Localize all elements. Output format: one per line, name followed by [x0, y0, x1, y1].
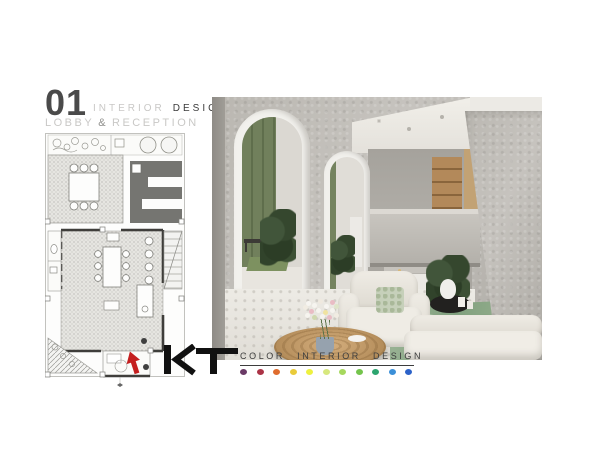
plan-bench-top	[107, 233, 119, 241]
plan-sink	[50, 267, 57, 273]
recessed-light-icon	[440, 115, 444, 119]
subtitle-lobby: LOBBY	[45, 117, 94, 129]
plan-meeting-table	[69, 173, 99, 201]
flower-stems	[320, 319, 330, 339]
plan-dark-dot-1	[141, 338, 147, 344]
plan-top-box	[115, 139, 124, 147]
ceiling	[352, 97, 474, 153]
sofa-seat	[404, 331, 542, 360]
render-photo	[212, 97, 542, 360]
plan-dim-diamond	[117, 383, 123, 387]
parapet-cap	[362, 209, 480, 214]
subtitle-ampersand: &	[98, 117, 108, 129]
page-subtitle: LOBBY&RECEPTION	[45, 117, 199, 129]
palette-dot	[257, 369, 264, 375]
kt-logo	[163, 344, 239, 376]
plan-unit-box	[132, 164, 141, 173]
plan-unit-notch-2	[142, 199, 182, 209]
mezzanine-recess	[368, 149, 478, 217]
logo-tagline: COLOR INTERIOR DESIGN	[240, 351, 414, 366]
green-pillow	[376, 287, 404, 313]
plan-entry-fixture	[107, 354, 121, 363]
candle	[458, 297, 465, 307]
plan-lobby-table	[103, 247, 121, 287]
recessed-light-icon	[377, 119, 381, 123]
palette-dot	[240, 369, 247, 375]
arch-1-opening	[242, 117, 302, 293]
subtitle-reception: RECEPTION	[112, 117, 199, 129]
wood-shelving	[432, 157, 462, 215]
arch-1	[234, 109, 310, 293]
page-title: INTERIORDESIGN	[93, 103, 229, 114]
palette-dots	[240, 369, 412, 375]
palette-dot	[389, 369, 396, 375]
palette-dot	[306, 369, 313, 375]
wall-left-edge	[212, 97, 225, 360]
palette-dot	[273, 369, 280, 375]
palette-dot	[356, 369, 363, 375]
plan-unit-notch-1	[148, 177, 182, 187]
plant	[260, 209, 296, 271]
palette-dot	[405, 369, 412, 375]
plan-round-table-1	[140, 137, 156, 153]
kt-logo-t-stem	[210, 348, 217, 374]
presentation-board: 01 INTERIORDESIGN LOBBY&RECEPTION	[0, 0, 600, 464]
sofa	[404, 315, 542, 360]
bench-leg	[245, 243, 247, 252]
palette-dot	[290, 369, 297, 375]
candle	[467, 301, 473, 309]
kt-logo-chevron	[176, 346, 194, 373]
palette-dot	[339, 369, 346, 375]
plan-bench-bottom	[104, 301, 119, 310]
dish	[348, 335, 366, 342]
plan-toilet	[51, 245, 57, 254]
plan-dark-dot-2	[143, 364, 149, 370]
flower-bouquet	[306, 301, 311, 306]
palette-dot	[323, 369, 330, 375]
white-vase	[440, 279, 456, 299]
title-interior: INTERIOR	[93, 103, 165, 114]
recessed-light-icon	[407, 127, 411, 131]
plan-round-table-2	[161, 137, 177, 153]
kt-logo-bar	[164, 345, 171, 374]
palette-dot	[372, 369, 379, 375]
